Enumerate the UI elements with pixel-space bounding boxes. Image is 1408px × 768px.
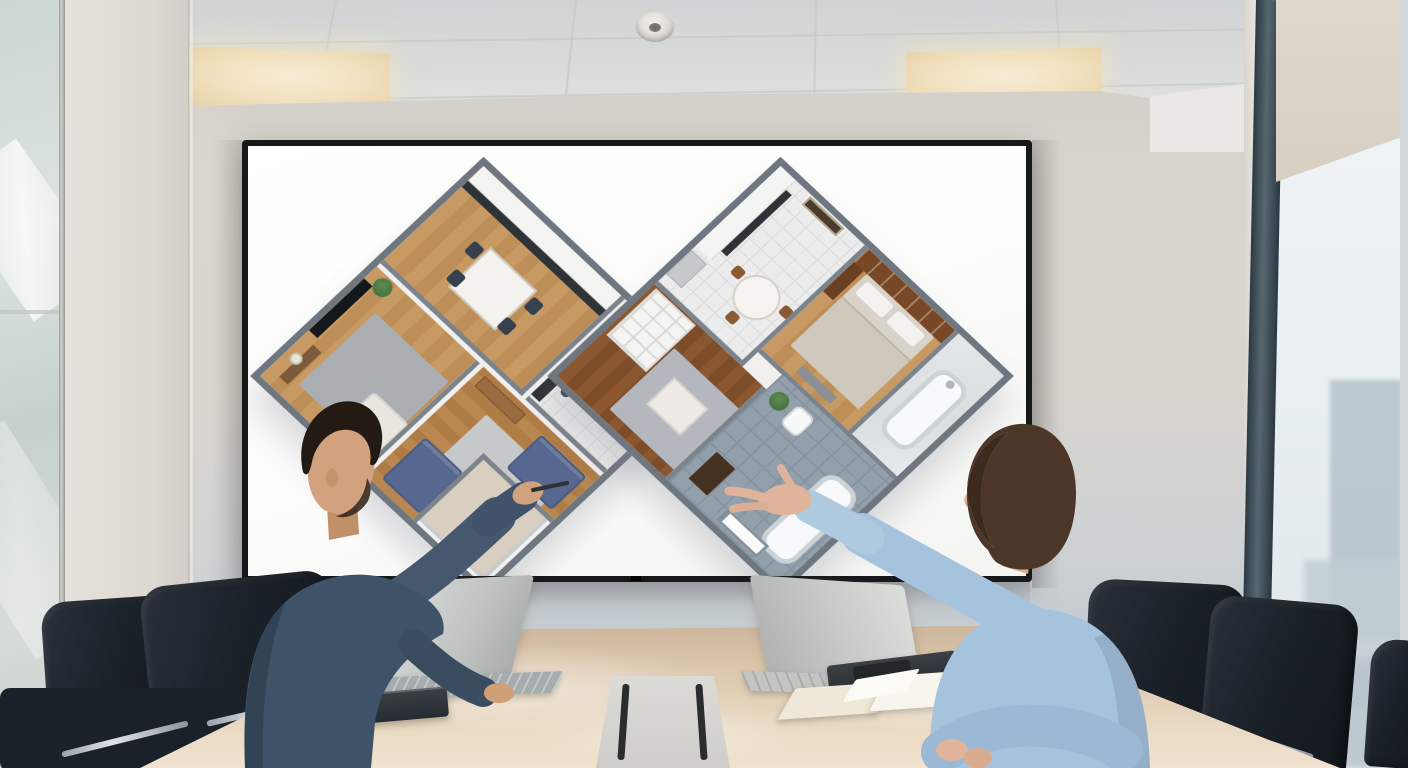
man-resting-arm: [413, 644, 483, 692]
kitchen2-cabinets: [696, 166, 796, 260]
woman-forearm-sleeve: [810, 507, 868, 538]
man-hand-on-table: [484, 683, 514, 703]
woman-hand-folded: [936, 739, 968, 761]
art-frame: [802, 197, 844, 237]
dining-table: [448, 247, 537, 331]
woman-thumb: [781, 468, 792, 487]
woman-gesturing: [690, 398, 1250, 768]
wood-chair: [778, 304, 795, 320]
man-torso: [244, 575, 443, 768]
man-pointing: [205, 392, 605, 768]
woman-finger: [729, 491, 762, 497]
meeting-room-photo: [0, 0, 1408, 768]
glass-frame-horizontal: [0, 310, 60, 314]
display-logo-notch: [631, 576, 641, 581]
woman-hand-folded: [964, 748, 992, 768]
smoke-detector: [636, 12, 674, 42]
ceiling-seam: [0, 26, 1408, 48]
woman-hand-palm: [759, 484, 812, 515]
woman-hair: [967, 424, 1076, 570]
fridge: [666, 250, 707, 289]
woman-finger: [733, 506, 765, 509]
man-ear: [326, 469, 338, 487]
plant: [368, 274, 396, 301]
